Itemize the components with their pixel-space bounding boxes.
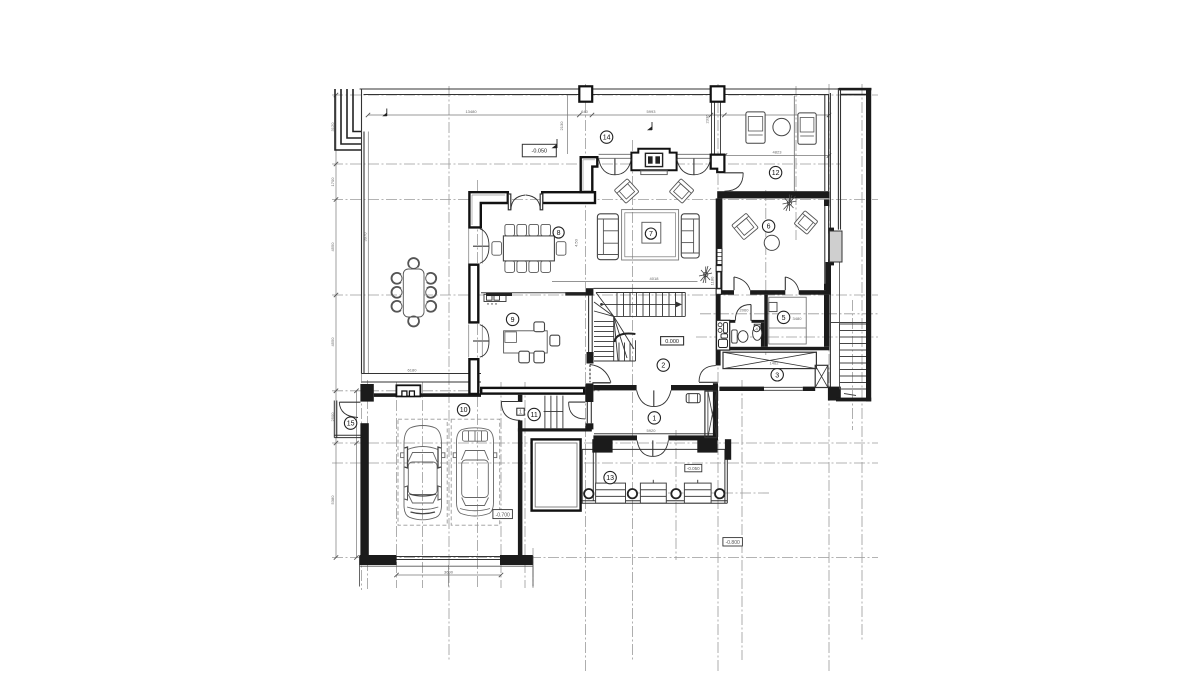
- svg-text:4550: 4550: [330, 337, 335, 347]
- svg-text:8: 8: [557, 230, 561, 237]
- svg-text:12: 12: [772, 170, 780, 177]
- svg-text:9: 9: [511, 317, 515, 324]
- svg-text:2336: 2336: [705, 114, 710, 124]
- svg-text:0.000: 0.000: [665, 339, 679, 345]
- svg-text:4.50: 4.50: [574, 238, 579, 247]
- svg-text:1180: 1180: [710, 276, 715, 285]
- svg-text:3970: 3970: [363, 232, 368, 242]
- svg-text:15: 15: [347, 421, 355, 428]
- svg-text:2060: 2060: [740, 308, 750, 313]
- svg-text:6: 6: [767, 224, 771, 231]
- svg-text:13480: 13480: [465, 109, 477, 114]
- svg-text:1: 1: [652, 415, 656, 422]
- svg-text:1700: 1700: [330, 177, 335, 187]
- svg-text:11: 11: [530, 412, 537, 419]
- svg-text:5: 5: [782, 315, 786, 322]
- svg-text:13: 13: [606, 475, 614, 482]
- svg-text:4018: 4018: [650, 276, 660, 281]
- svg-text:-0.050: -0.050: [531, 149, 547, 155]
- svg-text:-0.800: -0.800: [726, 540, 740, 546]
- svg-text:6180: 6180: [408, 368, 418, 373]
- svg-text:-0.700: -0.700: [496, 512, 510, 518]
- svg-text:2130: 2130: [559, 121, 564, 131]
- svg-text:14: 14: [603, 135, 611, 142]
- svg-text:3480: 3480: [793, 316, 803, 321]
- svg-text:5993: 5993: [647, 109, 657, 114]
- svg-text:3: 3: [775, 372, 779, 379]
- svg-text:4823: 4823: [773, 150, 783, 155]
- svg-text:640: 640: [581, 109, 588, 114]
- svg-text:3600: 3600: [444, 570, 454, 575]
- svg-text:5920: 5920: [647, 428, 657, 433]
- svg-text:10: 10: [460, 407, 468, 414]
- svg-text:7: 7: [649, 231, 653, 238]
- svg-text:4550: 4550: [330, 242, 335, 252]
- svg-text:5380: 5380: [330, 495, 335, 505]
- svg-text:1: 1: [519, 410, 522, 416]
- svg-text:2: 2: [661, 363, 665, 370]
- svg-text:-0.050: -0.050: [687, 466, 700, 471]
